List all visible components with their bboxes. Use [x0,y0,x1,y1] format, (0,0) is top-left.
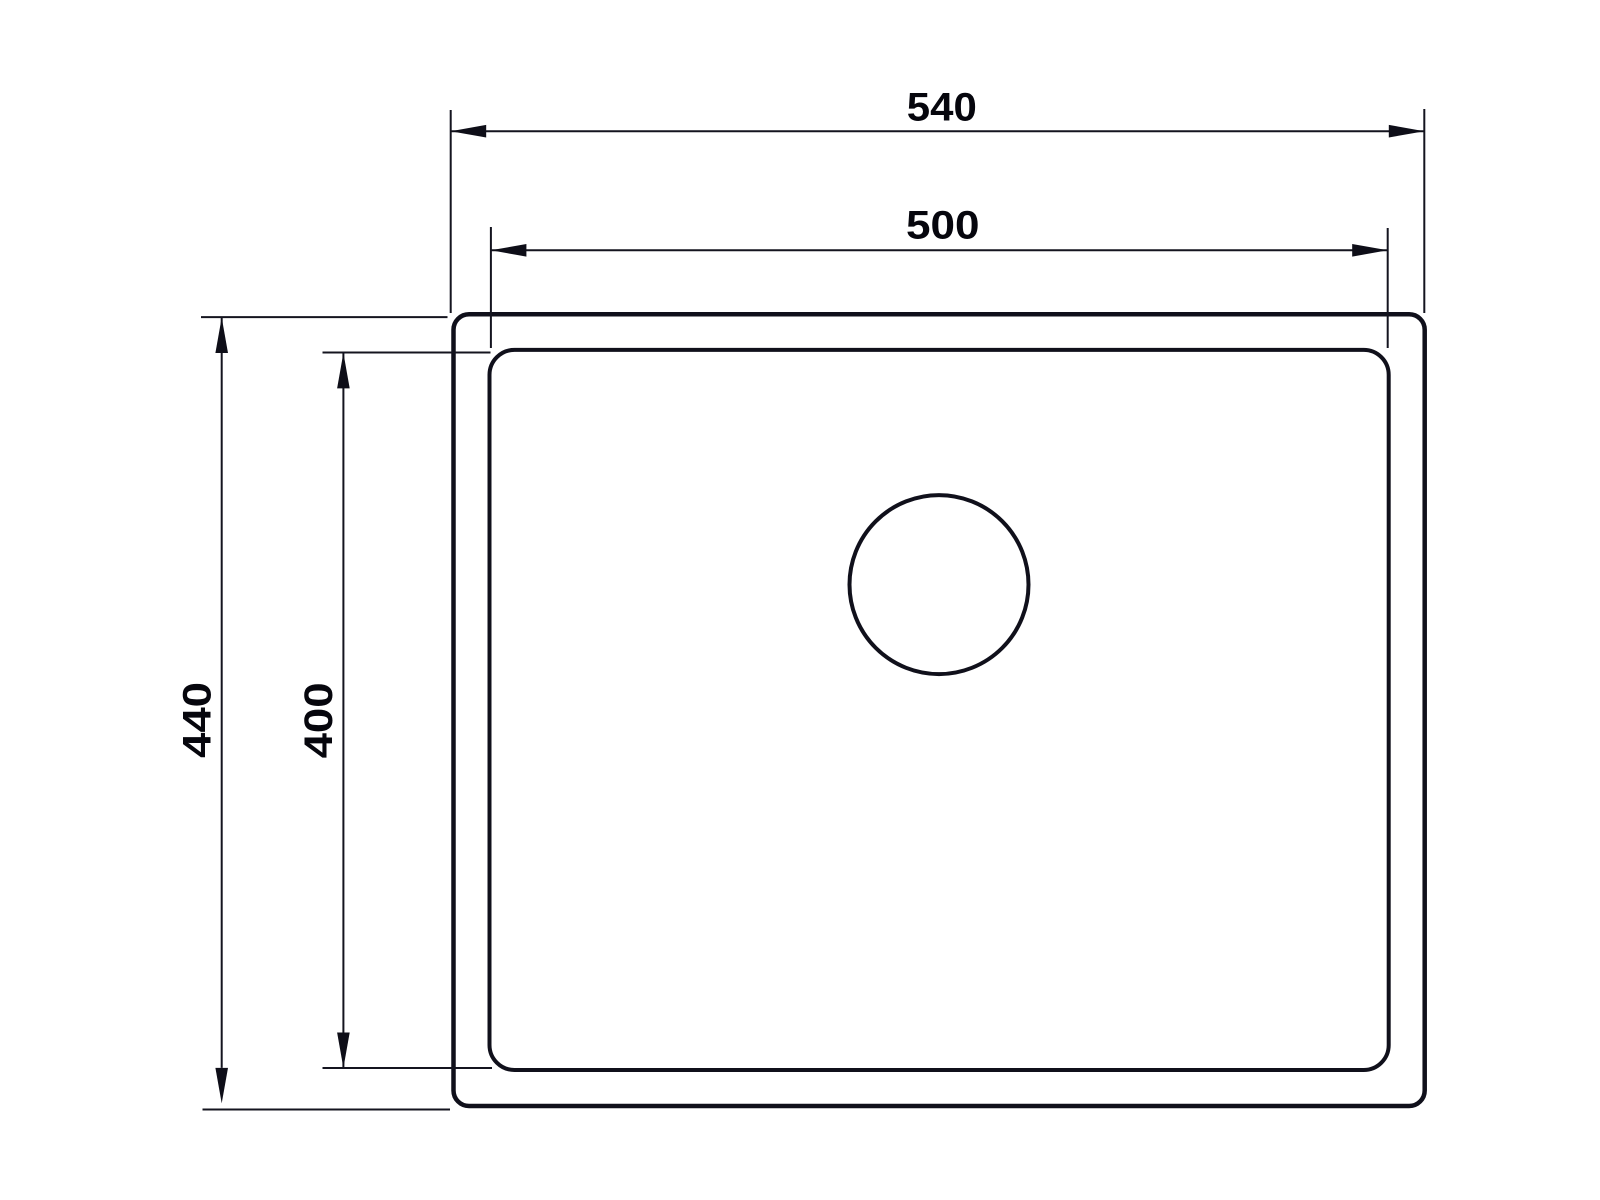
svg-text:440: 440 [175,682,219,758]
svg-text:500: 500 [906,204,980,248]
svg-text:400: 400 [297,682,341,758]
svg-text:540: 540 [907,86,977,130]
